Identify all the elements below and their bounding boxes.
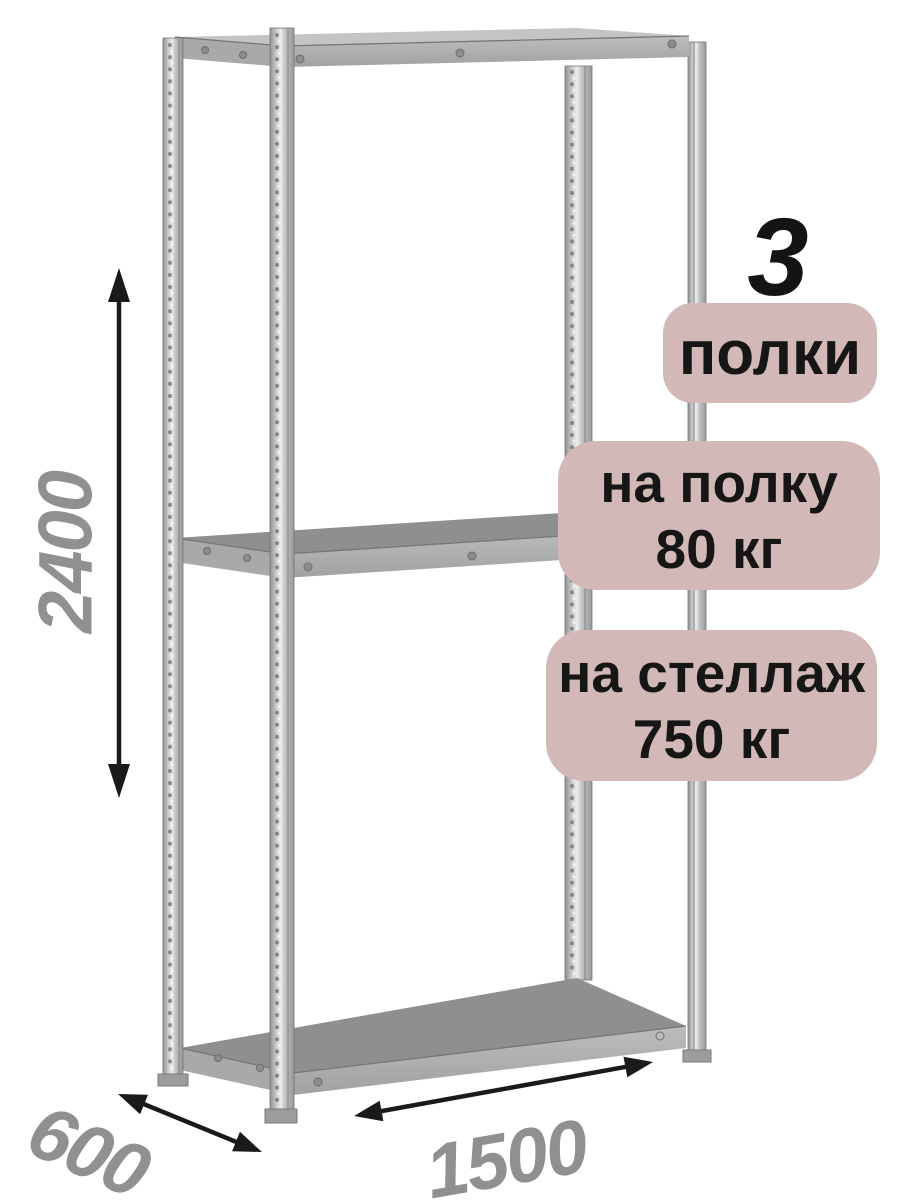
per-rack-load-line2: 750 кг xyxy=(633,706,790,772)
height-dimension-label: 2400 xyxy=(23,458,110,648)
per-rack-load-line1: на стеллаж xyxy=(558,640,865,706)
height-arrow xyxy=(108,268,130,798)
post-foot xyxy=(158,1074,188,1086)
shelf-count-badge: полки xyxy=(663,303,877,403)
per-shelf-load-badge: на полку 80 кг xyxy=(558,441,880,590)
rack-posts-front xyxy=(158,28,297,1123)
shelf-count-label: полки xyxy=(679,318,861,389)
shelf-top xyxy=(175,28,689,67)
per-shelf-load-line2: 80 кг xyxy=(656,516,783,582)
per-shelf-load-line1: на полку xyxy=(600,450,838,516)
rack-illustration xyxy=(0,0,900,1200)
post-front-left xyxy=(270,28,294,1111)
post-back-left xyxy=(163,38,183,1076)
product-card: 2400 600 1500 3 полки на полку 80 кг на … xyxy=(0,0,900,1200)
shelf-count: 3 xyxy=(718,203,838,313)
post-foot xyxy=(265,1109,297,1123)
post-foot xyxy=(683,1050,711,1062)
per-rack-load-badge: на стеллаж 750 кг xyxy=(546,630,877,781)
shelf-bottom xyxy=(180,978,686,1095)
